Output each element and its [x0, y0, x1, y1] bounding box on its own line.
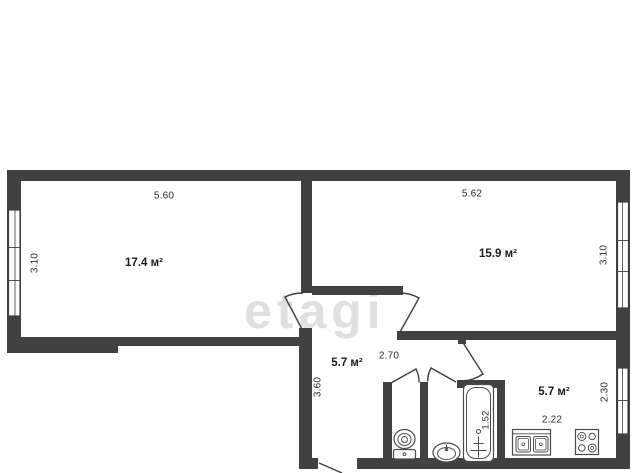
door-entry: [319, 463, 342, 473]
door-kitchen: [462, 341, 483, 381]
window-kitchen: [618, 368, 629, 434]
wall-bath-right: [497, 380, 505, 458]
wall-right-room-bottom: [397, 331, 630, 340]
wall-hall-left: [299, 328, 312, 458]
dim-label-kitchen-depth: 2.30: [600, 382, 611, 402]
wall-middle: [301, 170, 312, 293]
area-label-hallway: 5.7 м²: [331, 357, 363, 369]
dim-label-hallway-width: 2.70: [379, 351, 399, 362]
wall-bottom: [357, 458, 630, 469]
wall-vestibule-top: [312, 286, 403, 295]
area-label-kitchen: 5.7 м²: [538, 386, 570, 398]
dim-label-hallway-depth: 3.60: [313, 377, 324, 397]
window-left-room: [9, 210, 21, 316]
dim-label-bathtub-length: 1.52: [481, 410, 492, 429]
area-label-room-right: 15.9 м²: [479, 248, 517, 260]
wall-hall-bottom-corner: [299, 458, 318, 469]
wall-wc-bath-divider: [420, 382, 428, 458]
door-wc: [391, 369, 419, 383]
window-right-room: [618, 202, 629, 308]
door-bath: [428, 368, 456, 382]
walls: [7, 170, 630, 469]
dim-label-room-left-depth: 3.10: [30, 253, 41, 273]
dim-label-kitchen-width: 2.22: [542, 415, 562, 426]
door-left-room: [285, 293, 303, 331]
dim-label-room-right-width: 5.62: [462, 189, 482, 200]
wall-left-room-bottom: [7, 337, 299, 346]
kitchen-sink-icon: [513, 430, 551, 456]
windows: [9, 202, 629, 434]
stove-icon: [576, 430, 599, 455]
wall-wc-left: [383, 382, 392, 458]
door-right-room: [400, 293, 419, 332]
wall-top: [7, 170, 630, 181]
wash-basin-icon: [433, 443, 460, 462]
floor-plan-canvas: etagi: [0, 0, 640, 473]
wall-left-room-bottom-step: [7, 346, 118, 353]
toilet-icon: [394, 430, 416, 460]
dim-label-room-left-width: 5.60: [154, 191, 174, 202]
dim-label-room-right-depth: 3.10: [599, 245, 610, 265]
area-label-room-left: 17.4 м²: [125, 257, 163, 269]
floor-plan-drawing: [0, 0, 640, 473]
